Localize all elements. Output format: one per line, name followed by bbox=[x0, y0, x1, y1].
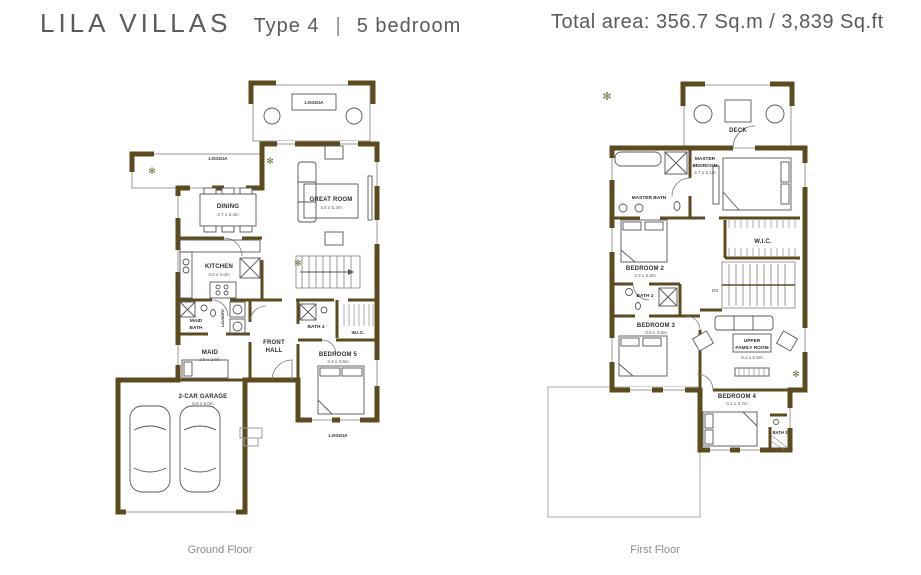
room-dims-kitchen: 3.6 x 3.0m bbox=[208, 272, 230, 277]
room-label-maid-bath-2: BATH bbox=[190, 325, 204, 331]
bedroom4-bed bbox=[703, 412, 757, 446]
room-dims-garage: 6.0 x 6.0m bbox=[192, 401, 214, 406]
room-label-loggia-left: LOGGIA bbox=[209, 156, 228, 162]
room-label-bedroom5: BEDROOM 5 bbox=[319, 352, 358, 358]
total-area: Total area: 356.7 Sq.m / 3,839 Sq.ft bbox=[551, 11, 884, 34]
room-label-loggia-top: LOGGIA bbox=[305, 100, 324, 106]
room-label-family-1: UPPER bbox=[744, 338, 761, 344]
room-dims-bedroom2: 3.3 x 3.5m bbox=[634, 273, 656, 278]
first-stairs bbox=[722, 262, 795, 308]
room-label-laundry: LAUNDRY bbox=[221, 308, 225, 327]
bedroom5-bed bbox=[318, 366, 364, 414]
plant-icon: ✻ bbox=[148, 166, 156, 176]
ground-floor-caption: Ground Floor bbox=[130, 544, 310, 556]
bath4-fixtures bbox=[300, 304, 327, 320]
room-label-bath2: BATH 2 bbox=[637, 293, 654, 299]
room-label-dining: DINING bbox=[217, 204, 239, 210]
room-label-bedroom4: BEDROOM 4 bbox=[718, 394, 757, 400]
room-label-maid: MAID bbox=[202, 350, 219, 356]
room-label-wic-ground: W.I.C. bbox=[351, 330, 364, 336]
plant-icon: ✻ bbox=[792, 369, 800, 379]
room-label-garage: 2-CAR GARAGE bbox=[179, 394, 228, 400]
bedroom2-bed bbox=[621, 220, 667, 262]
great-room-furniture bbox=[298, 146, 372, 245]
ground-stairs bbox=[296, 256, 360, 288]
plant-icon: ✻ bbox=[266, 156, 274, 166]
room-label-maid-bath-1: MAID bbox=[190, 318, 203, 324]
plant-icon: ✻ bbox=[602, 91, 611, 103]
room-dims-bedroom5: 3.4 x 3.5m bbox=[327, 359, 349, 364]
room-label-great-room: GREAT ROOM bbox=[310, 197, 353, 203]
villa-type: Type 4 bbox=[253, 15, 319, 38]
deck-furniture bbox=[694, 100, 784, 123]
garage-cars bbox=[130, 406, 220, 492]
room-label-loggia-bottom: LOGGIA bbox=[329, 433, 348, 439]
maid-bed bbox=[182, 360, 228, 378]
room-dims-dining: 3.7 x 3.4m bbox=[217, 212, 239, 217]
first-floor-caption: First Floor bbox=[565, 544, 745, 556]
plot-outline bbox=[548, 387, 700, 517]
room-dims-maid: 2.5 x 2.6m bbox=[199, 357, 221, 362]
room-label-master-bath: MASTER BATH bbox=[632, 195, 667, 201]
room-dims-bedroom4: 3.1 x 3.7m bbox=[726, 401, 748, 406]
master-bed bbox=[713, 158, 791, 210]
laundry-machines bbox=[230, 302, 245, 334]
room-label-bedroom2: BEDROOM 2 bbox=[626, 266, 665, 272]
room-dims-master-bedroom: 4.7 x 5.1m bbox=[694, 170, 716, 175]
bedroom3-bed bbox=[619, 336, 667, 376]
room-label-kitchen: KITCHEN bbox=[205, 264, 233, 270]
master-bath-fixtures bbox=[615, 152, 687, 212]
loggia-top-furniture bbox=[264, 94, 362, 124]
ground-doors bbox=[212, 238, 336, 380]
room-label-front-hall-1: FRONT bbox=[263, 340, 285, 346]
page-header: LILA VILLAS Type 4 | 5 bedroom bbox=[40, 8, 461, 39]
header-divider: | bbox=[336, 15, 341, 38]
room-label-bath4: BATH 4 bbox=[308, 324, 325, 330]
first-floor-plan: ✻ ✻ DECK MASTER BEDROOM 4.7 x 5.1m MASTE… bbox=[545, 78, 815, 525]
room-dims-bedroom3: 3.6 x 3.6m bbox=[645, 330, 667, 335]
dining-table bbox=[200, 188, 256, 232]
ground-floor-plan: ✻ ✻ ✻ LOGGIA LOGGIA DINING 3.7 x 3.4m GR… bbox=[112, 70, 402, 530]
room-label-bedroom3: BEDROOM 3 bbox=[637, 323, 676, 329]
room-dims-great-room: 4.5 x 5.4m bbox=[320, 205, 342, 210]
wic-closet-hatch bbox=[344, 304, 373, 326]
room-label-master-bedroom-2: BEDROOM bbox=[692, 163, 717, 169]
room-label-family-2: FAMILY ROOM bbox=[735, 345, 768, 351]
brand-title: LILA VILLAS bbox=[40, 8, 231, 39]
room-label-wic-first: W.I.C. bbox=[754, 239, 772, 245]
stairs-dn-label: DN bbox=[712, 288, 719, 293]
room-dims-family: 5.4 x 5.5m bbox=[741, 355, 763, 360]
wic-closet-hatch bbox=[729, 220, 795, 256]
maid-bath-fixtures bbox=[180, 302, 216, 317]
room-label-master-bedroom-1: MASTER bbox=[695, 156, 716, 162]
room-label-front-hall-2: HALL bbox=[266, 348, 283, 354]
room-label-deck: DECK bbox=[729, 128, 747, 134]
bedroom-count: 5 bedroom bbox=[357, 15, 462, 38]
plant-icon: ✻ bbox=[294, 258, 302, 268]
room-label-bath3: BATH 3 bbox=[773, 430, 788, 435]
